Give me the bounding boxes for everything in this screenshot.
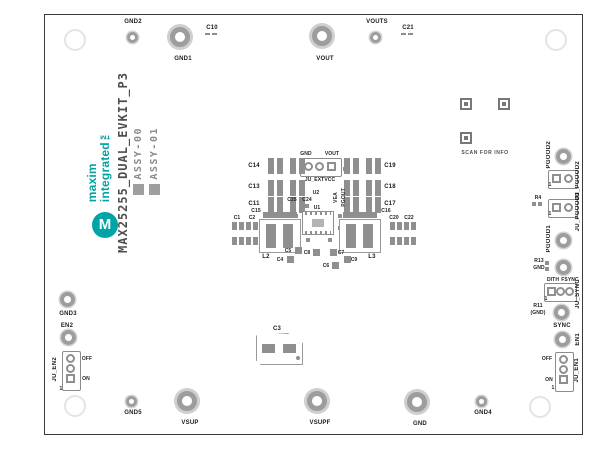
c19-label: C19: [384, 163, 396, 170]
vsup-terminal: [177, 391, 197, 411]
capacitor-pads: [404, 237, 416, 245]
c10-value-text: [205, 33, 210, 35]
gnd1-label: GND1: [174, 56, 191, 63]
ju-extvcc-pad1: [304, 162, 313, 171]
c16-label: C16: [381, 208, 390, 214]
ju-pgood2-pad2: [564, 174, 573, 183]
gnd2-label: GND2: [124, 19, 141, 26]
sync-label: SYNC: [553, 323, 570, 330]
vsup-label: VSUP: [181, 420, 198, 427]
c10-value-text: [212, 33, 217, 35]
sync-terminal: [554, 305, 569, 320]
c19-capacitor: [366, 158, 381, 174]
r13-pad: [545, 267, 549, 271]
c9-capacitor: [344, 256, 351, 263]
ju-en1-pin1-label: 1: [552, 385, 555, 391]
c15-capacitor: [263, 212, 297, 218]
qr-caption: SCAN FOR INFO: [461, 150, 508, 156]
capacitor-pads: [246, 237, 258, 245]
smd-pad: [328, 238, 332, 242]
ju-pgood1-pad1: [552, 203, 561, 212]
ju-en2-label: JU_EN2: [52, 357, 59, 381]
vout-label: VOUT: [316, 56, 333, 63]
ju-sync-label: JU_SYNC: [575, 279, 582, 309]
c3-polarity-dot: [296, 356, 300, 360]
pcb-photo-canvas: { "colors":{"teal":"#00A3A6","pad_gray":…: [0, 0, 600, 452]
c2-capacitor: [246, 222, 258, 230]
capacitor-pads: [390, 237, 402, 245]
ju-en1-on-label: ON: [545, 377, 553, 383]
c6-label: C6: [323, 263, 330, 269]
ju-en1-label: JU_EN1: [574, 358, 581, 382]
r13-net-label: GND: [533, 265, 544, 271]
c16-capacitor: [343, 212, 377, 218]
c4-label: C4: [277, 257, 284, 263]
ju-en1-pad-off: [559, 355, 568, 364]
c21-value-text: [408, 33, 413, 35]
smd-pad: [338, 214, 342, 218]
u2-label: U2: [313, 190, 320, 196]
c25-pad: [290, 204, 294, 208]
en1-label: EN1: [575, 333, 582, 346]
ju-pgood1-label: JU_PGOOD1: [575, 192, 582, 231]
logo-line1: maxim: [85, 163, 99, 202]
vouts-label: VOUTS: [366, 19, 388, 26]
c10-label: C10: [206, 25, 218, 32]
extvcc-vout-label: VOUT: [325, 151, 339, 157]
c22-label: C22: [404, 215, 413, 221]
c1-capacitor: [232, 222, 244, 230]
c11-capacitor: [268, 197, 283, 213]
c4-capacitor: [287, 256, 294, 263]
r11-label: R11: [533, 303, 542, 309]
ju-pgood1-pin1-label: 1: [549, 211, 552, 217]
c3-pad: [262, 344, 275, 353]
gnd3-label: GND3: [59, 311, 76, 318]
en2-label: EN2: [61, 323, 73, 330]
u1-pins: [305, 212, 331, 215]
c2-label: C2: [249, 215, 256, 221]
mount-hole-bottom-left: [64, 395, 86, 417]
ju-en1-pad-mid: [559, 365, 568, 374]
ju-pgood1-pad2: [564, 203, 573, 212]
c5-label: C5: [285, 248, 292, 254]
maxim-logo-wordmark: maximintegrated™: [86, 128, 112, 202]
assy-01-label: ASSY-01: [149, 127, 160, 180]
c14-label: C14: [248, 163, 260, 170]
ju-extvcc-pad2: [315, 162, 324, 171]
c8-capacitor: [313, 249, 320, 256]
assy-01-checkbox: [149, 184, 160, 195]
pgood1-label: PGOOD1: [546, 225, 553, 252]
ju-sync-pad2: [556, 287, 565, 296]
c18-capacitor: [366, 180, 381, 196]
c13-label: C13: [248, 184, 260, 191]
ju-en2-pad-on: [66, 374, 75, 383]
c11-label: C11: [248, 201, 259, 208]
c21-value-text: [401, 33, 406, 35]
c20-label: C20: [389, 215, 398, 221]
assy-00-marking: ASSY-00: [133, 127, 144, 195]
logo-line2: integrated™: [98, 128, 112, 202]
qr-finder-icon: [460, 132, 472, 144]
c17-label: C17: [384, 201, 396, 208]
c22-capacitor: [404, 222, 416, 230]
mount-hole-top-left: [64, 29, 86, 51]
ju-en1-pad-on: [559, 375, 568, 384]
c24-pad: [305, 204, 309, 208]
u1-ic: [302, 211, 334, 235]
vouts-pad: [370, 32, 381, 43]
ju-pgood2-pin1-label: 1: [549, 182, 552, 188]
assy-00-checkbox: [133, 184, 144, 195]
vea-label: VEA: [333, 192, 339, 203]
c6-capacitor: [332, 262, 339, 269]
gnd2-pad: [127, 32, 138, 43]
r4-label: R4: [535, 195, 542, 201]
ju-en2-pad-mid: [66, 364, 75, 373]
en2-terminal: [61, 330, 76, 345]
r4-pad: [538, 202, 542, 206]
pgood2-label: PGOOD2: [546, 141, 553, 168]
c13-capacitor: [268, 180, 283, 196]
c14-capacitor: [290, 158, 305, 174]
gnd4-pad: [476, 396, 487, 407]
ju-extvcc-label: JU_EXTVCC: [305, 177, 335, 183]
pgood2-terminal: [556, 149, 571, 164]
l3-inductor: [339, 219, 381, 253]
gnd4-label: GND4: [474, 410, 491, 417]
mount-hole-top-right: [545, 29, 567, 51]
r11-net-label: (GND): [531, 310, 546, 316]
ju-sync-pin1-label: 1: [545, 296, 548, 302]
mount-hole-bottom-right: [529, 396, 551, 418]
assy-00-label: ASSY-00: [133, 127, 144, 180]
maxim-monogram-icon: M: [92, 212, 118, 238]
c17-capacitor: [366, 197, 381, 213]
board-title: MAX25255_DUAL_EVKIT_P3: [116, 72, 130, 253]
smd-pad: [306, 238, 310, 242]
assy-01-marking: ASSY-01: [149, 127, 160, 195]
ju-sync-pad1: [547, 287, 556, 296]
gnd5-label: GND5: [124, 410, 141, 417]
ju-en2-pin1-label: 1: [60, 386, 63, 392]
l3-label: L3: [368, 254, 375, 261]
capacitor-pads: [232, 237, 244, 245]
c9-label: C9: [351, 257, 358, 263]
c20-capacitor: [390, 222, 402, 230]
u1-pins: [305, 231, 331, 234]
c3-label: C3: [273, 326, 281, 333]
c18-label: C18: [384, 184, 396, 191]
r13-label: R13: [534, 258, 543, 264]
c25-label: C25: [287, 197, 296, 203]
pgood1-terminal: [556, 233, 571, 248]
c7-capacitor: [330, 249, 337, 256]
l2-label: L2: [262, 254, 269, 261]
pgout-label: PGOUT: [341, 188, 347, 207]
r13-pad: [545, 261, 549, 265]
qr-finder-icon: [498, 98, 510, 110]
c15-label: C15: [251, 208, 260, 214]
vsupf-terminal: [307, 391, 327, 411]
gnd1-terminal: [170, 27, 190, 47]
c13-capacitor: [290, 180, 305, 196]
test-point-ring: [556, 260, 571, 275]
c8-label: C8: [304, 250, 311, 256]
ju-en2-on-label: ON: [82, 376, 90, 382]
u1-die: [312, 219, 324, 227]
c14-capacitor: [268, 158, 283, 174]
ju-pgood2-pad1: [552, 174, 561, 183]
ju-en2-off-label: OFF: [82, 356, 92, 362]
gnd-terminal: [407, 392, 427, 412]
c21-label: C21: [402, 25, 414, 32]
r4-pad: [532, 202, 536, 206]
c24-label: C24: [302, 197, 311, 203]
c5-capacitor: [295, 247, 302, 254]
gnd5-pad: [126, 396, 137, 407]
vout-terminal: [312, 26, 332, 46]
gnd-label: GND: [413, 421, 427, 428]
ju-extvcc-pad3: [327, 162, 336, 171]
c1-label: C1: [234, 215, 241, 221]
qr-code: [458, 96, 512, 146]
c3-pad: [283, 344, 296, 353]
ju-sync-pad3: [565, 287, 574, 296]
ju-en1-off-label: OFF: [542, 356, 552, 362]
c19-capacitor: [344, 158, 359, 174]
extvcc-gnd-label: GND: [300, 151, 311, 157]
en1-terminal: [555, 332, 570, 347]
vsupf-label: VSUPF: [309, 420, 330, 427]
gnd3-terminal: [60, 292, 75, 307]
qr-finder-icon: [460, 98, 472, 110]
ju-en2-pad-off: [66, 354, 75, 363]
